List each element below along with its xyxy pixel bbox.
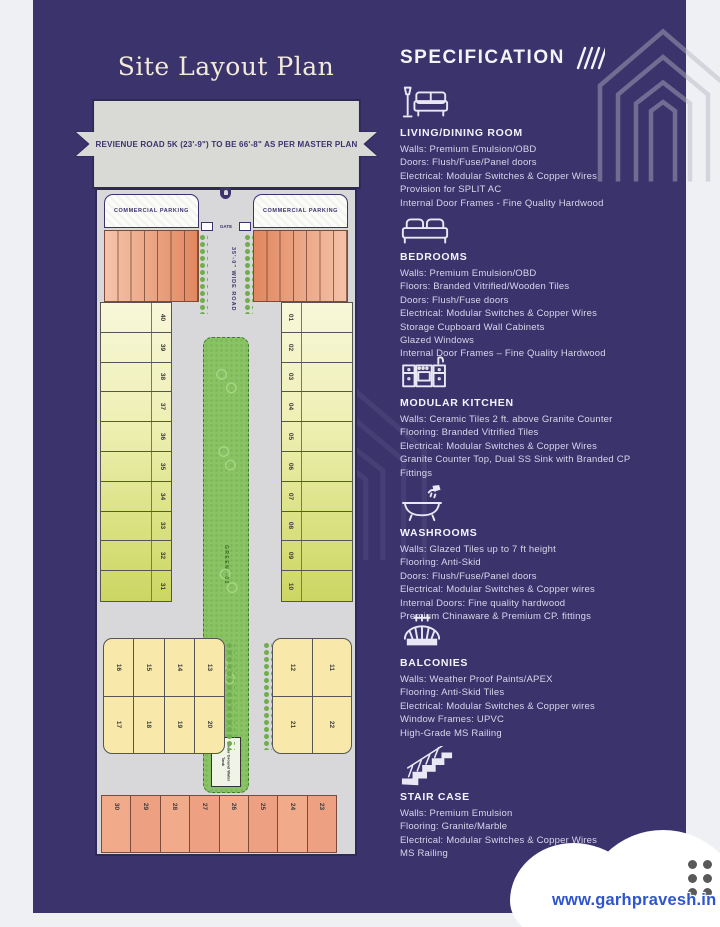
plot: 39 xyxy=(101,333,171,363)
plot: 09 xyxy=(282,541,352,571)
spec-line: Electrical: Modular Switches & Copper wi… xyxy=(400,583,685,596)
spec-section-bedrooms: BEDROOMS Walls: Premium Emulsion/OBDFloo… xyxy=(400,206,685,361)
plot: 38 xyxy=(101,363,171,393)
spec-line: Walls: Premium Emulsion/OBD xyxy=(400,267,685,280)
plot: 13 xyxy=(195,639,224,696)
plot: 17 xyxy=(104,697,134,754)
plot: 10 xyxy=(282,571,352,601)
spec-section-balconies: BALCONIES Walls: Weather Proof Paints/AP… xyxy=(400,612,685,740)
plot: 20 xyxy=(195,697,224,754)
plot: 24 xyxy=(278,796,307,852)
shrub-strip xyxy=(226,642,235,750)
plot: 01 xyxy=(282,303,352,333)
plot-column-left: 40393837363534333231 xyxy=(100,302,172,602)
middle-plot-block-right: 1211 2122 xyxy=(272,638,352,754)
spec-section-kitchen: MODULAR KITCHEN Walls: Ceramic Tiles 2 f… xyxy=(400,352,685,480)
plot: 08 xyxy=(282,512,352,542)
plot-column-right: 01020304050607080910 xyxy=(281,302,353,602)
page-title: Site Layout Plan xyxy=(80,52,372,81)
plot: 04 xyxy=(282,392,352,422)
spec-line: Doors: Flush/Fuse/Panel doors xyxy=(400,156,685,169)
gate-pillar-right xyxy=(239,222,251,231)
specification-heading: SPECIFICATION xyxy=(400,46,605,70)
middle-plot-block-left: 16151413 17181920 xyxy=(103,638,225,754)
spec-title: LIVING/DINING ROOM xyxy=(400,127,685,139)
wide-road-label: 35'-0" WIDE ROAD xyxy=(216,240,236,318)
spec-title: BALCONIES xyxy=(400,657,685,669)
plot: 29 xyxy=(131,796,160,852)
commercial-parking-right: COMMERCIAL PARKING xyxy=(253,194,348,228)
plot: 19 xyxy=(165,697,195,754)
green-area-label: GREEN -01 xyxy=(223,545,229,585)
spec-title: BEDROOMS xyxy=(400,251,685,263)
kitchen-icon xyxy=(400,352,685,392)
spec-line: Doors: Flush/Fuse doors xyxy=(400,294,685,307)
spec-line: Walls: Weather Proof Paints/APEX xyxy=(400,673,685,686)
shrub-strip xyxy=(199,234,208,314)
balcony-icon xyxy=(400,612,685,652)
plot: 26 xyxy=(220,796,249,852)
spec-line: Electrical: Modular Switches & Copper Wi… xyxy=(400,307,685,320)
revenue-road-label: REVIENUE ROAD 5K (23'-9") TO BE 66'-8" A… xyxy=(96,140,358,149)
spec-section-washrooms: WASHROOMS Walls: Glazed Tiles up to 7 ft… xyxy=(400,482,685,623)
spec-line: Glazed Windows xyxy=(400,334,685,347)
plot: 23 xyxy=(308,796,336,852)
plot: 27 xyxy=(190,796,219,852)
plot: 35 xyxy=(101,452,171,482)
spec-line: Fittings xyxy=(400,467,685,480)
plot: 40 xyxy=(101,303,171,333)
plot: 15 xyxy=(134,639,164,696)
bottom-plot-row: 3029282726252423 xyxy=(101,795,337,853)
commercial-plots-right xyxy=(253,230,348,302)
spec-title: STAIR CASE xyxy=(400,791,685,803)
spec-title: MODULAR KITCHEN xyxy=(400,397,685,409)
shrub-strip xyxy=(263,642,272,750)
spec-line: Electrical: Modular Switches & Copper Wi… xyxy=(400,170,685,183)
staircase-icon xyxy=(400,746,685,786)
spec-line: Doors: Flush/Fuse/Panel doors xyxy=(400,570,685,583)
spec-line: Granite Counter Top, Dual SS Sink with B… xyxy=(400,453,685,466)
sofa-lamp-icon xyxy=(400,82,685,122)
spec-line: Flooring: Branded Vitrified Tiles xyxy=(400,426,685,439)
gate-icon xyxy=(220,187,231,199)
spec-line: Walls: Glazed Tiles up to 7 ft height xyxy=(400,543,685,556)
plot: 02 xyxy=(282,333,352,363)
spec-line: Internal Doors: Fine quality hardwood xyxy=(400,597,685,610)
plot: 32 xyxy=(101,541,171,571)
plot: 25 xyxy=(249,796,278,852)
plot: 33 xyxy=(101,512,171,542)
slashes-icon xyxy=(575,46,605,70)
spec-line: Flooring: Anti-Skid Tiles xyxy=(400,686,685,699)
commercial-parking-left: COMMERCIAL PARKING xyxy=(104,194,199,228)
plot: 36 xyxy=(101,422,171,452)
bathtub-icon xyxy=(400,482,685,522)
plot: 22 xyxy=(313,697,352,754)
spec-line: Electrical: Modular Switches & Copper wi… xyxy=(400,700,685,713)
plot: 37 xyxy=(101,392,171,422)
spec-line: Flooring: Anti-Skid xyxy=(400,556,685,569)
gate-label: GATE xyxy=(214,224,238,229)
plot: 11 xyxy=(313,639,352,696)
plot: 18 xyxy=(134,697,164,754)
plot: 06 xyxy=(282,452,352,482)
spec-line: Window Frames: UPVC xyxy=(400,713,685,726)
plot: 28 xyxy=(161,796,190,852)
plot: 30 xyxy=(102,796,131,852)
revenue-road-banner: REVIENUE ROAD 5K (23'-9") TO BE 66'-8" A… xyxy=(74,99,379,189)
plot: 31 xyxy=(101,571,171,601)
spec-line: Storage Cupboard Wall Cabinets xyxy=(400,321,685,334)
gate-pillar-left xyxy=(201,222,213,231)
plot: 16 xyxy=(104,639,134,696)
spec-line: Provision for SPLIT AC xyxy=(400,183,685,196)
plot: 07 xyxy=(282,482,352,512)
spec-line: Walls: Ceramic Tiles 2 ft. above Granite… xyxy=(400,413,685,426)
commercial-plots-left xyxy=(104,230,199,302)
plot: 05 xyxy=(282,422,352,452)
bed-icon xyxy=(400,206,685,246)
plot: 14 xyxy=(165,639,195,696)
spec-line: Walls: Premium Emulsion/OBD xyxy=(400,143,685,156)
spec-line: Electrical: Modular Switches & Copper Wi… xyxy=(400,440,685,453)
spec-line: Floors: Branded Vitrified/Wooden Tiles xyxy=(400,280,685,293)
shrub-strip xyxy=(244,234,253,314)
plot: 03 xyxy=(282,363,352,393)
spec-line: Walls: Premium Emulsion xyxy=(400,807,685,820)
plot: 34 xyxy=(101,482,171,512)
spec-title: WASHROOMS xyxy=(400,527,685,539)
spec-section-living-dining: LIVING/DINING ROOM Walls: Premium Emulsi… xyxy=(400,82,685,210)
watermark-link[interactable]: www.garhpravesh.in xyxy=(552,891,716,910)
plot: 12 xyxy=(273,639,313,696)
plot: 21 xyxy=(273,697,313,754)
spec-line: High-Grade MS Railing xyxy=(400,727,685,740)
brochure-page: Site Layout Plan REVIENUE ROAD 5K (23'-9… xyxy=(0,0,720,927)
